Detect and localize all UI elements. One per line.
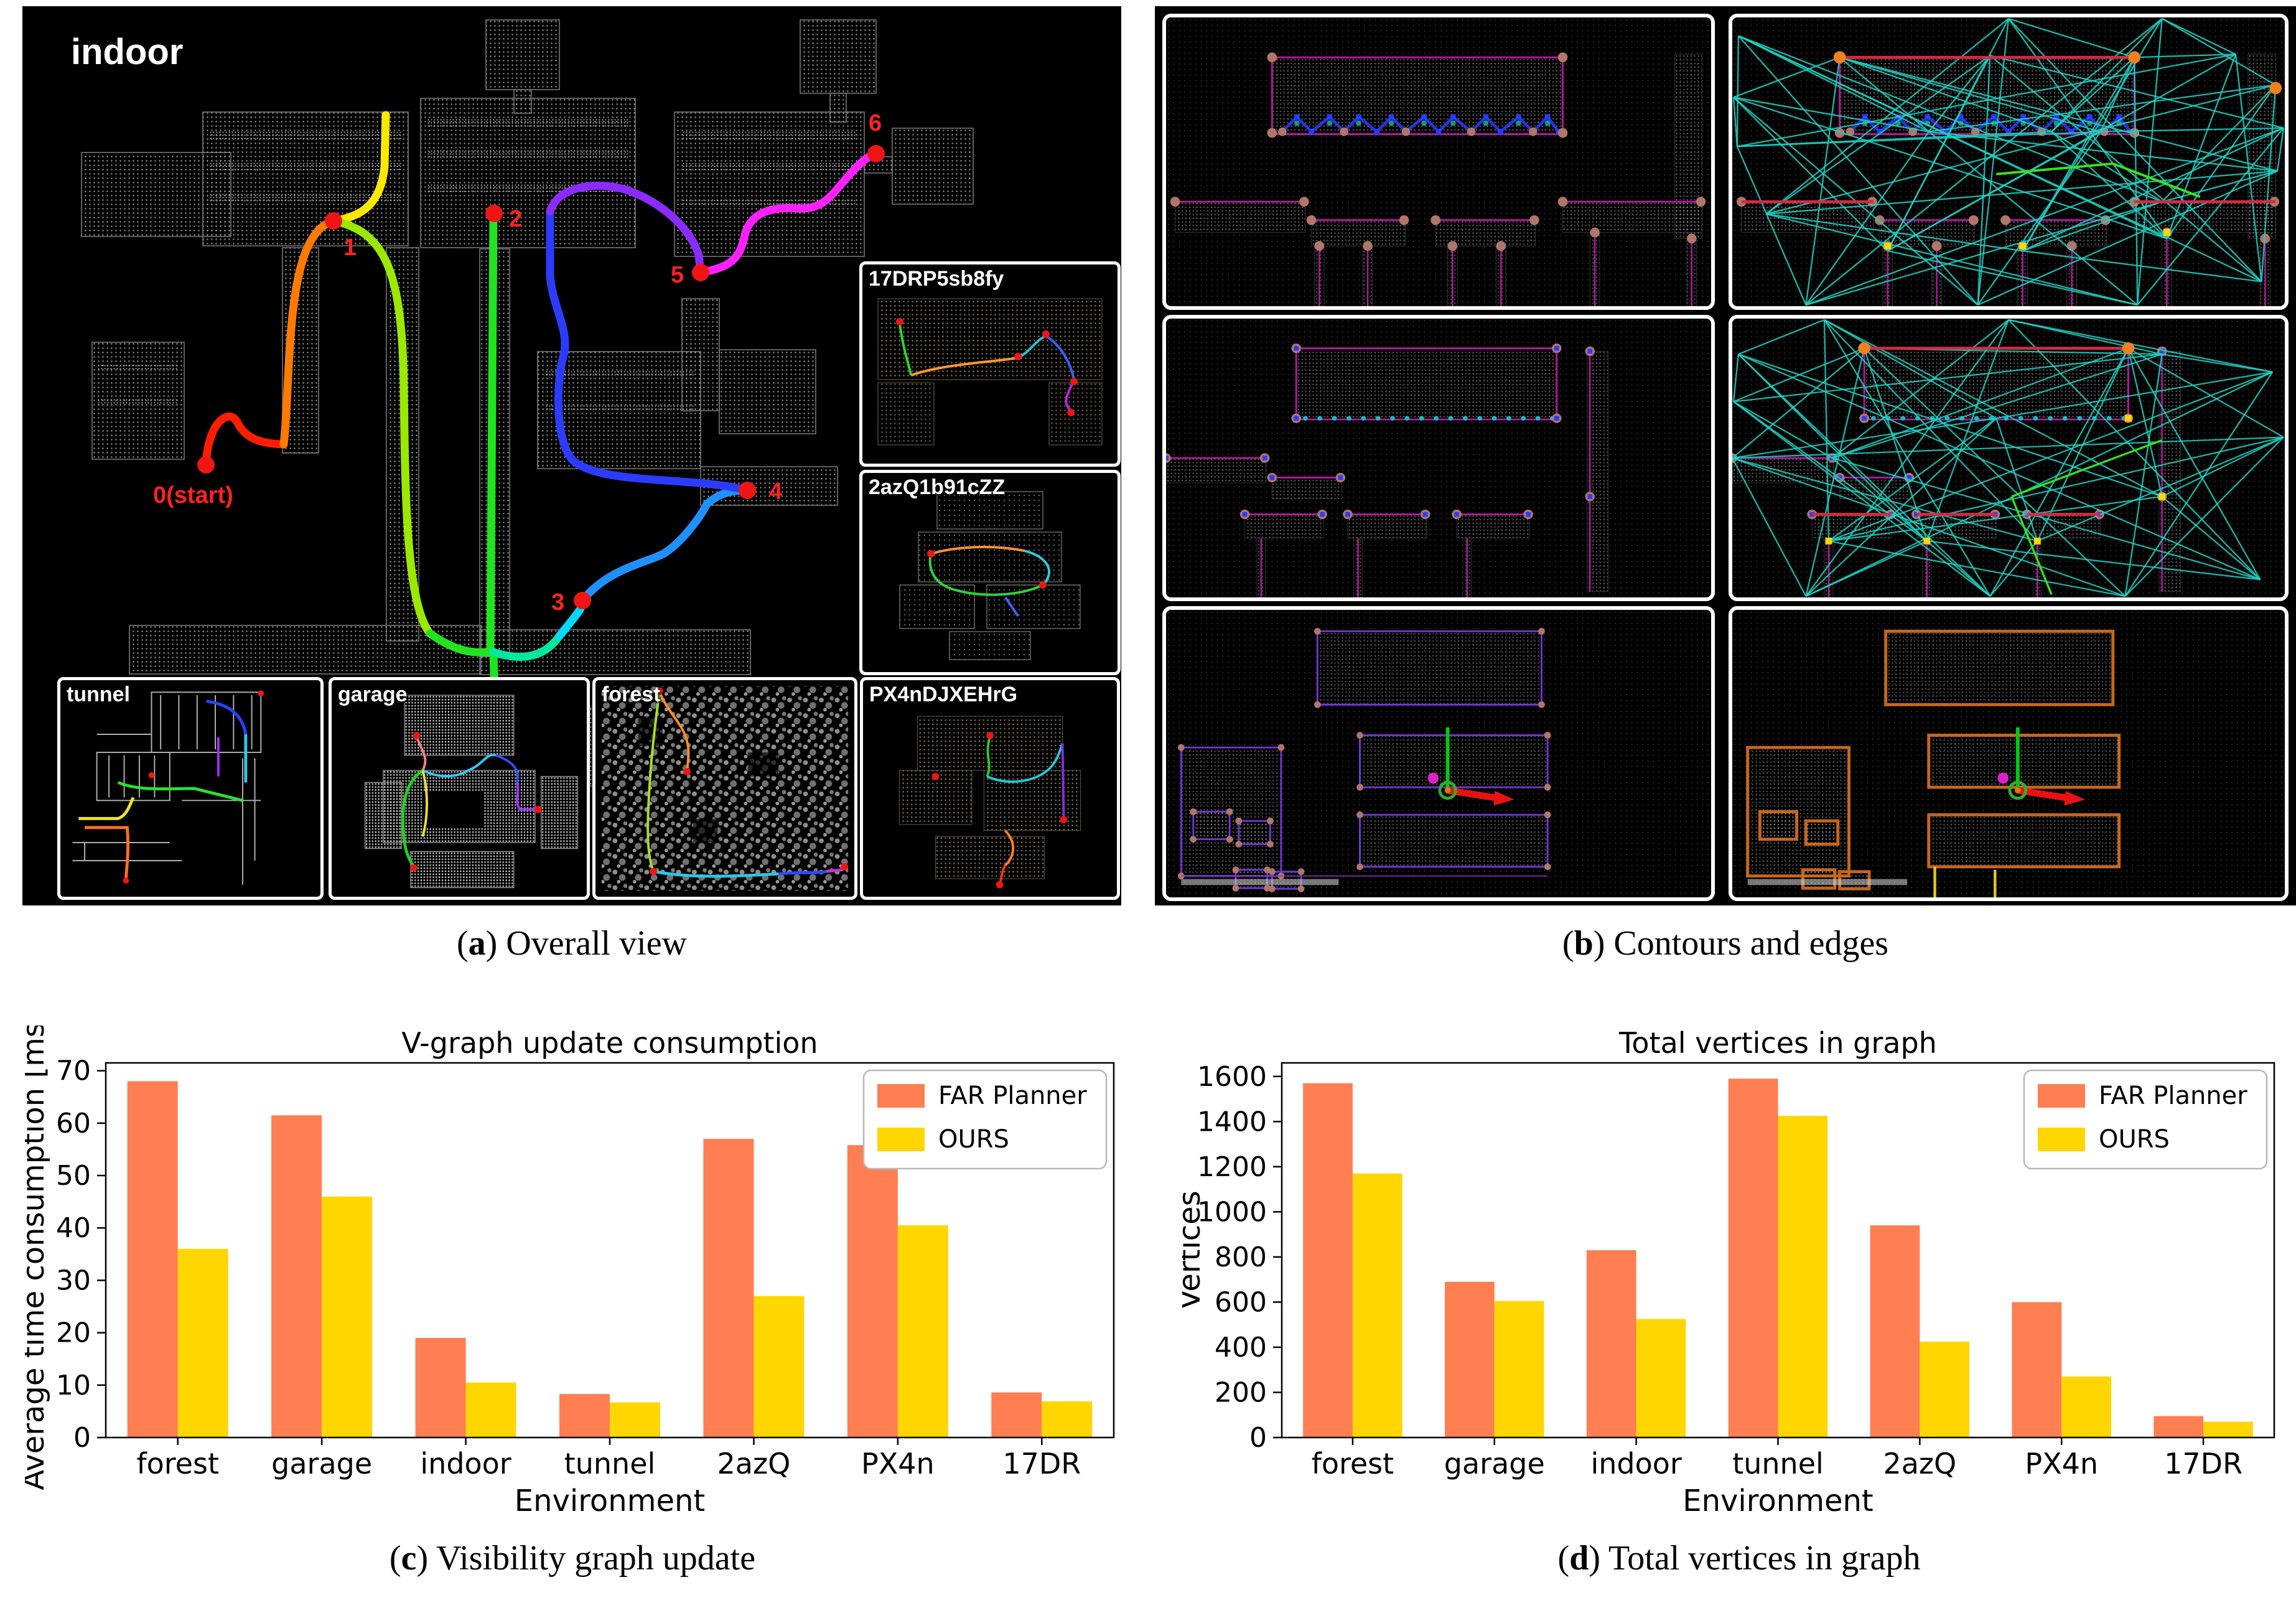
orange-contour-view-scene3-robot [1732,610,2285,897]
x-axis-label: Environment [515,1484,706,1518]
contour-view-scene1 [1166,17,1711,306]
bar-ours-17DR [1042,1401,1092,1438]
inset-map-2azQ1b91cZZ [862,473,1118,672]
x-tick-label: 2azQ [717,1447,791,1480]
inset-forest: forest [592,677,857,900]
contour-view-scene2 [1166,319,1711,597]
caption-b: (b) Contours and edges [1155,923,2296,963]
waypoint-dot [739,482,756,499]
chart-svg: V-graph update consumption01020304050607… [25,1026,1120,1523]
waypoint-dot [574,592,591,609]
legend-label: OURS [2099,1125,2170,1154]
inset-map-forest [595,680,854,897]
legend-label: OURS [938,1125,1009,1154]
bpanel-edges-scene2 [1729,315,2289,601]
inset-map-PX4nDJXEHrG [863,680,1117,897]
y-tick-label: 20 [56,1317,91,1349]
y-tick-label: 400 [1215,1332,1267,1363]
waypoint-label: 5 [671,262,684,288]
y-axis-label: Vertices [1182,1190,1207,1309]
bar-far-planner-garage [1445,1282,1495,1438]
legend-swatch [2038,1128,2085,1151]
trajectory-segment [582,490,747,601]
inset-map-tunnel [60,680,320,897]
bar-ours-17DR [2203,1422,2253,1438]
chart-title: V-graph update consumption [401,1026,818,1060]
bpanel-contours-scene1 [1162,14,1715,310]
bar-far-planner-17DR [2154,1416,2203,1438]
waypoint-dot [197,456,215,474]
bar-far-planner-forest [1303,1083,1353,1438]
waypoint-label: 6 [869,110,882,136]
bpanel-contours-scene3-orange [1729,606,2289,901]
inset-tunnel: tunnel [57,677,324,900]
bpanel-edges-scene1 [1729,14,2289,310]
y-tick-label: 0 [1249,1422,1267,1454]
contour-view-scene3-robot [1166,610,1711,897]
inset-map-17DRP5sb8fy [862,264,1118,464]
y-tick-label: 10 [56,1370,91,1401]
y-tick-label: 30 [56,1265,91,1296]
inset-label: tunnel [67,683,130,707]
bar-far-planner-indoor [416,1338,466,1438]
bar-far-planner-2azQ [1870,1225,1920,1438]
bar-far-planner-forest [128,1081,178,1438]
x-tick-label: tunnel [1732,1447,1824,1480]
edge-view-scene1 [1732,17,2285,306]
legend-swatch [2038,1084,2085,1108]
y-tick-label: 40 [56,1212,91,1244]
y-tick-label: 1200 [1197,1151,1267,1183]
bar-far-planner-indoor [1587,1250,1636,1438]
bar-far-planner-PX4n [847,1145,898,1438]
waypoint-label: 1 [343,235,357,261]
chart-total-vertices: Total vertices in graph02004006008001000… [1182,1026,2296,1523]
caption-d: (d) Total vertices in graph [1182,1538,2296,1578]
waypoint-label: 4 [769,479,782,505]
waypoint-dot [867,145,885,162]
bar-far-planner-PX4n [2012,1302,2061,1438]
edge-view-scene2 [1732,319,2285,597]
inset-label: PX4nDJXEHrG [869,683,1017,707]
panel-b-contours-edges [1155,6,2296,905]
bar-ours-indoor [466,1383,516,1438]
inset-label: garage [338,683,408,707]
bpanel-contours-scene2 [1162,315,1715,601]
panel-a-overall-view: indoor [22,6,1121,905]
y-tick-label: 1000 [1197,1196,1267,1228]
bar-ours-tunnel [610,1403,660,1438]
bar-far-planner-17DR [991,1393,1042,1438]
environment-label-indoor: indoor [71,31,183,73]
y-tick-label: 600 [1215,1286,1267,1318]
chart-svg: Total vertices in graph02004006008001000… [1182,1026,2296,1523]
legend-swatch [877,1084,925,1108]
waypoint-label: 0(start) [153,482,233,508]
y-axis-label: Average time consumption [ms] [25,1026,51,1490]
x-tick-label: indoor [1590,1447,1681,1480]
figure-page: indoor [0,0,2296,1613]
y-tick-label: 800 [1215,1241,1267,1273]
bar-far-planner-garage [271,1115,322,1438]
x-tick-label: 2azQ [1883,1447,1956,1480]
inset-PX4nDJXEHrG: PX4nDJXEHrG [860,677,1120,900]
bpanel-contours-scene3 [1162,606,1715,901]
bar-ours-garage [1495,1301,1544,1438]
caption-a: (a) Overall view [22,923,1121,963]
trajectory-segment [206,416,284,465]
waypoint-dot [485,205,503,222]
x-tick-label: PX4n [861,1447,935,1480]
legend-label: FAR Planner [2099,1082,2247,1110]
legend-swatch [877,1128,925,1151]
bar-far-planner-2azQ [703,1139,754,1438]
x-tick-label: tunnel [564,1447,656,1480]
bar-far-planner-tunnel [559,1394,610,1438]
waypoint-dot [325,212,342,230]
x-tick-label: 17DR [2164,1447,2242,1480]
legend-label: FAR Planner [938,1082,1087,1110]
y-tick-label: 200 [1215,1377,1267,1408]
bar-ours-2azQ [754,1296,804,1438]
caption-c: (c) Visibility graph update [25,1538,1120,1578]
bar-ours-forest [178,1249,228,1438]
x-tick-label: 17DR [1002,1447,1081,1480]
y-tick-label: 70 [56,1055,91,1087]
waypoint-label: 2 [509,206,522,232]
bar-far-planner-tunnel [1729,1078,1778,1438]
x-axis-label: Environment [1682,1484,1874,1518]
inset-label: 17DRP5sb8fy [869,267,1004,291]
y-tick-label: 0 [73,1422,91,1454]
inset-map-garage [332,680,587,897]
inset-label: forest [602,683,660,707]
trajectory-segment [490,218,493,652]
inset-label: 2azQ1b91cZZ [869,475,1005,500]
y-tick-label: 1400 [1197,1106,1267,1138]
bar-ours-forest [1353,1174,1402,1438]
y-tick-label: 50 [56,1160,91,1192]
x-tick-label: forest [1312,1447,1394,1480]
y-tick-label: 1600 [1197,1061,1267,1093]
y-tick-label: 60 [56,1108,91,1139]
bar-ours-PX4n [2061,1377,2111,1438]
waypoint-label: 3 [551,589,564,615]
bar-ours-tunnel [1778,1116,1828,1438]
inset-2azQ1b91cZZ: 2azQ1b91cZZ [859,470,1121,675]
bar-ours-2azQ [1920,1342,1969,1438]
bar-ours-indoor [1636,1319,1686,1438]
chart-vgraph-update-consumption: V-graph update consumption01020304050607… [25,1026,1120,1523]
x-tick-label: garage [271,1447,372,1480]
bar-ours-garage [322,1197,372,1438]
x-tick-label: indoor [420,1447,511,1480]
inset-garage: garage [329,677,590,900]
inset-17DRP5sb8fy: 17DRP5sb8fy [859,261,1121,467]
bar-ours-PX4n [898,1225,948,1438]
x-tick-label: PX4n [2025,1447,2098,1480]
x-tick-label: garage [1444,1447,1545,1480]
x-tick-label: forest [136,1447,219,1480]
waypoint-dot [692,264,709,281]
chart-title: Total vertices in graph [1618,1026,1937,1060]
